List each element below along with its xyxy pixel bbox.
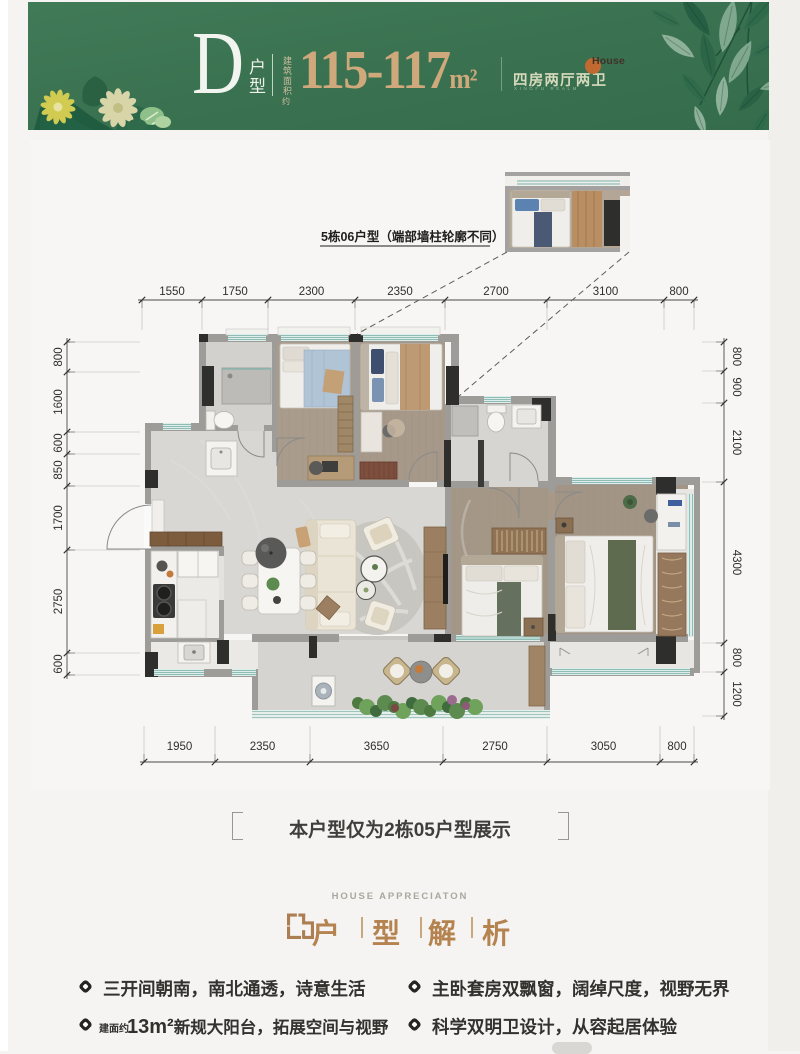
svg-text:900: 900 [730,377,742,396]
svg-text:3100: 3100 [593,286,619,298]
svg-text:1750: 1750 [222,286,248,298]
svg-text:1700: 1700 [53,505,65,531]
svg-text:600: 600 [53,654,65,673]
svg-text:2750: 2750 [53,589,65,615]
svg-text:3050: 3050 [591,741,617,753]
svg-text:2750: 2750 [482,741,508,753]
svg-text:2100: 2100 [730,430,742,456]
svg-text:800: 800 [669,286,688,298]
svg-text:4300: 4300 [730,550,742,576]
svg-text:2350: 2350 [387,286,413,298]
svg-text:2350: 2350 [250,741,276,753]
svg-text:1950: 1950 [167,741,193,753]
svg-text:3650: 3650 [364,741,390,753]
svg-text:2700: 2700 [483,286,509,298]
svg-text:1600: 1600 [53,389,65,415]
svg-text:850: 850 [53,460,65,479]
svg-text:800: 800 [53,347,65,366]
svg-text:800: 800 [667,741,686,753]
svg-text:1550: 1550 [159,286,185,298]
svg-text:800: 800 [730,347,742,366]
svg-text:1200: 1200 [730,681,742,707]
svg-text:800: 800 [730,648,742,667]
svg-text:2300: 2300 [299,286,325,298]
svg-text:5栋06户型（端部墙柱轮廓不同）: 5栋06户型（端部墙柱轮廓不同） [321,229,504,244]
svg-text:600: 600 [53,433,65,452]
